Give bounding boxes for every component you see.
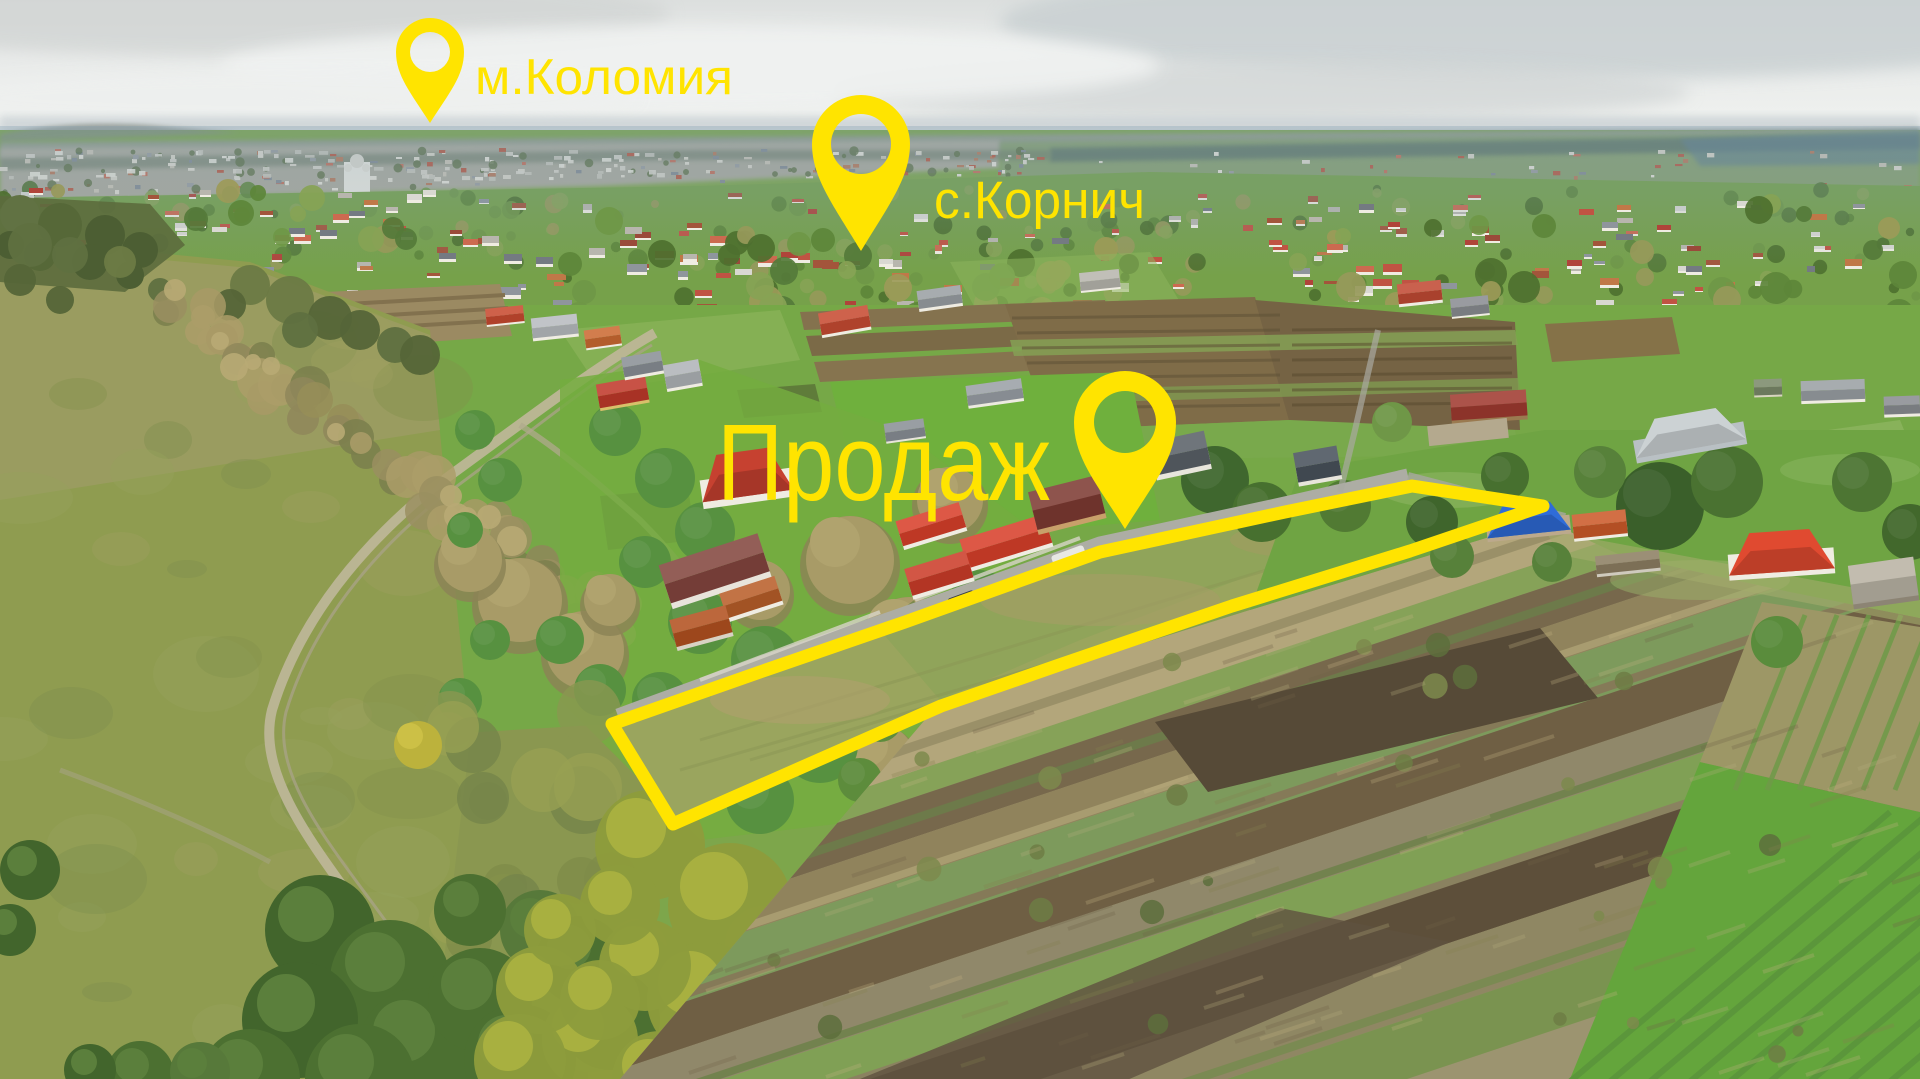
svg-text:Продаж: Продаж <box>717 402 1050 524</box>
svg-text:м.Коломия: м.Коломия <box>475 49 733 105</box>
svg-text:с.Корнич: с.Корнич <box>934 171 1145 230</box>
